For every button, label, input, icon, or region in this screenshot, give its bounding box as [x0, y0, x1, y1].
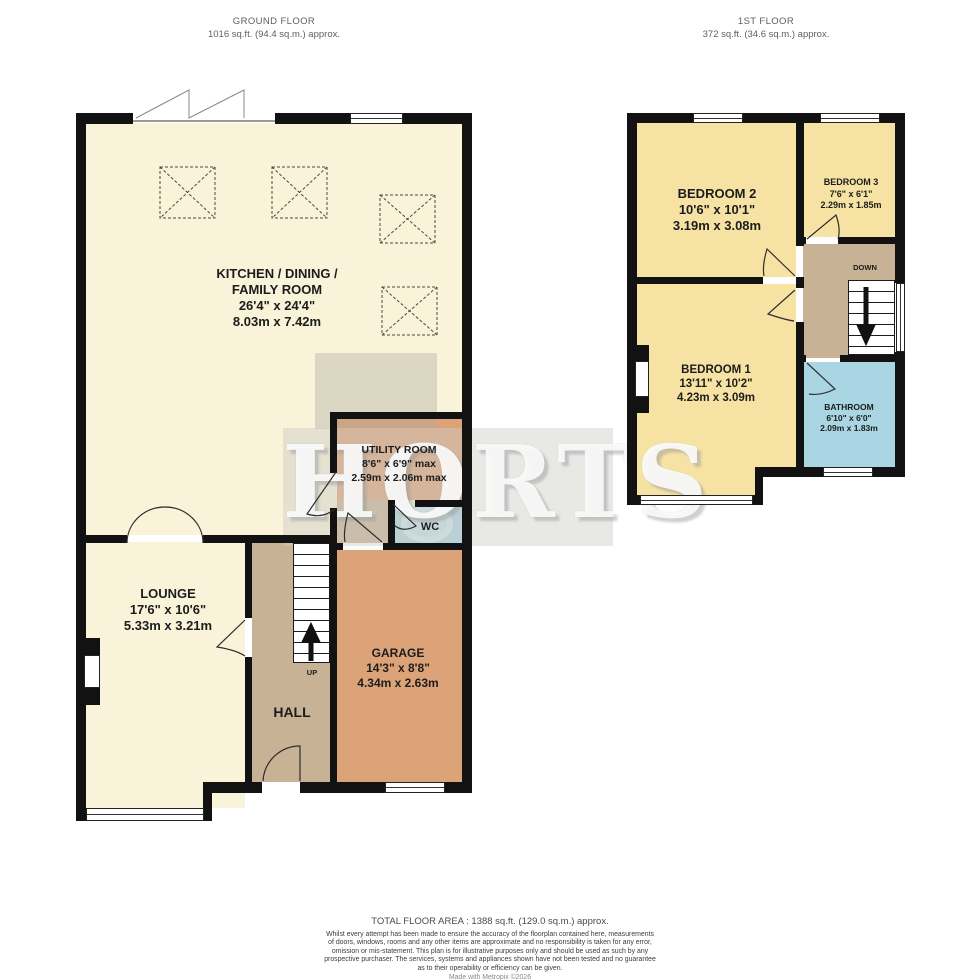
room-label-lounge: LOUNGE 17'6" x 10'6" 5.33m x 3.21m [88, 586, 248, 634]
room-dims-imperial: 26'4" x 24'4" [177, 298, 377, 314]
room-label-kitchen: KITCHEN / DINING / FAMILY ROOM 26'4" x 2… [177, 266, 377, 330]
window [896, 283, 905, 352]
wall [300, 782, 385, 793]
room-name: KITCHEN / DINING / [177, 266, 377, 282]
room-dims-metric: 2.59m x 2.06m max [329, 471, 469, 485]
room-label-hall: HALL [262, 704, 322, 720]
room-dims-imperial: 17'6" x 10'6" [88, 602, 248, 618]
first-floor-header: 1ST FLOOR 372 sq.ft. (34.6 sq.m.) approx… [616, 16, 916, 40]
wall [627, 495, 640, 505]
room-name: WC [405, 521, 455, 533]
disclaimer-line: Whilst every attempt has been made to en… [0, 931, 980, 939]
stairs-first [848, 280, 895, 355]
wall [415, 500, 472, 507]
room-dims-metric: 2.29m x 1.85m [801, 200, 901, 212]
room-dims-metric: 3.19m x 3.08m [637, 218, 797, 234]
room-name: LOUNGE [88, 586, 248, 602]
room-dims-imperial: 10'6" x 10'1" [637, 202, 797, 218]
disclaimer: Whilst every attempt has been made to en… [0, 931, 980, 973]
credit-line: Made with Metropix ©2026 [0, 974, 980, 980]
room-name: HALL [262, 704, 322, 720]
bifold-door-icon [136, 90, 244, 118]
chimney-breast [627, 345, 649, 361]
first-floor-title: 1ST FLOOR [616, 16, 916, 27]
wall [873, 467, 905, 477]
wall [245, 657, 252, 782]
room-dims-imperial: 7'6" x 6'1" [801, 189, 901, 201]
room-name: FAMILY ROOM [177, 282, 377, 298]
wall [755, 467, 823, 477]
fireplace-recess [84, 655, 100, 688]
chimney-breast [76, 638, 100, 655]
wall [388, 500, 395, 543]
room-label-bedroom2: BEDROOM 2 10'6" x 10'1" 3.19m x 3.08m [637, 186, 797, 234]
window [350, 113, 403, 124]
garage-door [385, 782, 445, 793]
disclaimer-line: as to their operability or efficiency ca… [0, 965, 980, 973]
ground-floor-title: GROUND FLOOR [124, 16, 424, 27]
room-label-bathroom: BATHROOM 6'10" x 6'0" 2.09m x 1.83m [799, 402, 899, 434]
stairs-ground [293, 543, 330, 663]
first-floor-area: 372 sq.ft. (34.6 sq.m.) approx. [616, 29, 916, 40]
wall [330, 412, 472, 419]
wall [627, 113, 637, 505]
room-name: GARAGE [328, 646, 468, 661]
wall [203, 782, 212, 821]
wall [838, 237, 905, 244]
bay-window [86, 808, 204, 821]
wall [796, 277, 804, 288]
lounge-room [86, 542, 245, 808]
wall [637, 277, 763, 284]
room-name: BEDROOM 1 [637, 363, 795, 377]
window [640, 495, 753, 505]
room-dims-metric: 5.33m x 3.21m [88, 618, 248, 634]
wall [796, 355, 806, 362]
room-dims-metric: 4.34m x 2.63m [328, 676, 468, 691]
room-label-wc: WC [405, 521, 455, 533]
room-name: BATHROOM [799, 402, 899, 413]
wall [840, 355, 905, 362]
room-name: BEDROOM 2 [637, 186, 797, 202]
window [693, 113, 743, 123]
room-dims-imperial: 8'6" x 6'9" max [329, 457, 469, 471]
wall [445, 782, 472, 793]
floorplan-page: GROUND FLOOR 1016 sq.ft. (94.4 sq.m.) ap… [0, 0, 980, 980]
wall [796, 237, 806, 244]
stairs-up-label: UP [300, 668, 324, 677]
window [823, 467, 873, 477]
wall [275, 113, 350, 124]
room-dims-imperial: 13'11" x 10'2" [637, 377, 795, 391]
stairs-down-label: DOWN [843, 263, 887, 272]
disclaimer-line: prospective purchaser. The services, sys… [0, 956, 980, 964]
room-dims-metric: 2.09m x 1.83m [799, 423, 899, 434]
room-label-utility: UTILITY ROOM 8'6" x 6'9" max 2.59m x 2.0… [329, 443, 469, 485]
wall [330, 508, 337, 543]
wall [796, 322, 804, 467]
room-label-bedroom3: BEDROOM 3 7'6" x 6'1" 2.29m x 1.85m [801, 177, 901, 212]
bifold-threshold [133, 120, 275, 122]
wall [86, 535, 127, 543]
room-dims-metric: 4.23m x 3.09m [637, 391, 795, 405]
disclaimer-line: of doors, windows, rooms and any other i… [0, 939, 980, 947]
ground-floor-area: 1016 sq.ft. (94.4 sq.m.) approx. [124, 29, 424, 40]
wall [76, 113, 86, 821]
wall [203, 535, 337, 543]
room-name: BEDROOM 3 [801, 177, 901, 189]
stairs-label-text: UP [300, 668, 324, 677]
wall [753, 495, 763, 505]
room-dims-imperial: 6'10" x 6'0" [799, 413, 899, 424]
room-dims-imperial: 14'3" x 8'8" [328, 661, 468, 676]
footer: TOTAL FLOOR AREA : 1388 sq.ft. (129.0 sq… [0, 916, 980, 980]
window [820, 113, 880, 123]
stairs-label-text: DOWN [843, 263, 887, 272]
wall [743, 113, 820, 123]
chimney-breast [76, 688, 100, 705]
room-label-garage: GARAGE 14'3" x 8'8" 4.34m x 2.63m [328, 646, 468, 691]
room-label-bedroom1: BEDROOM 1 13'11" x 10'2" 4.23m x 3.09m [637, 363, 795, 405]
wall [337, 543, 343, 550]
total-floor-area: TOTAL FLOOR AREA : 1388 sq.ft. (129.0 sq… [0, 916, 980, 927]
disclaimer-line: omission or mis-statement. This plan is … [0, 948, 980, 956]
ground-floor-header: GROUND FLOOR 1016 sq.ft. (94.4 sq.m.) ap… [124, 16, 424, 40]
room-dims-metric: 8.03m x 7.42m [177, 314, 377, 330]
room-name: UTILITY ROOM [329, 443, 469, 457]
wall [383, 543, 472, 550]
